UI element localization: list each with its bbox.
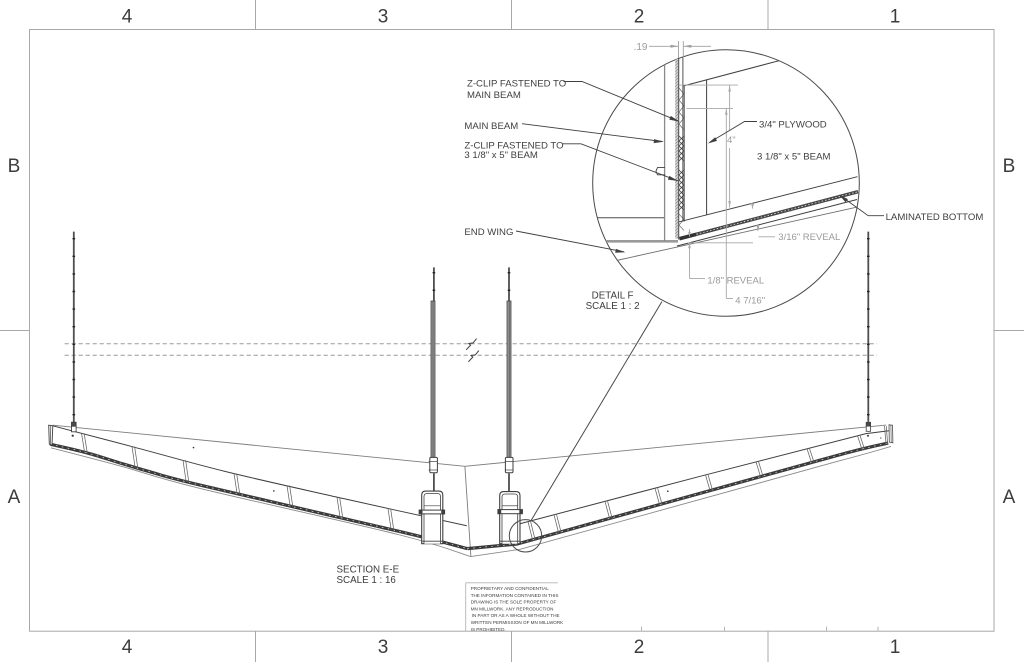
svg-text:3 1/8" x 5" BEAM: 3 1/8" x 5" BEAM <box>464 150 537 161</box>
svg-text:B: B <box>1003 156 1016 177</box>
svg-text:DRAWING IS THE SOLE PROPERTY O: DRAWING IS THE SOLE PROPERTY OF <box>471 600 557 605</box>
svg-text:IS PROHIBITED.: IS PROHIBITED. <box>471 627 506 632</box>
svg-text:B: B <box>8 156 21 177</box>
svg-text:SCALE 1 : 2: SCALE 1 : 2 <box>586 301 640 312</box>
svg-text:SECTION E-E: SECTION E-E <box>337 565 400 576</box>
svg-text:MAIN BEAM: MAIN BEAM <box>467 90 521 101</box>
svg-text:A: A <box>1003 487 1016 508</box>
svg-text:1: 1 <box>890 7 901 28</box>
svg-text:IN PART OR AS A WHOLE WITHOUT: IN PART OR AS A WHOLE WITHOUT THE <box>472 613 560 618</box>
svg-text:3: 3 <box>378 637 389 658</box>
svg-text:3: 3 <box>378 7 389 28</box>
svg-text:END WING: END WING <box>464 227 513 238</box>
svg-text:1/8" REVEAL: 1/8" REVEAL <box>707 276 764 287</box>
svg-text:4": 4" <box>727 135 736 146</box>
svg-text:THE INFORMATION CONTAINED IN T: THE INFORMATION CONTAINED IN THIS <box>471 593 559 598</box>
svg-text:2: 2 <box>634 7 645 28</box>
svg-text:3 1/8" x 5" BEAM: 3 1/8" x 5" BEAM <box>757 152 830 163</box>
svg-text:Z-CLIP FASTENED TO: Z-CLIP FASTENED TO <box>467 78 566 89</box>
svg-text:4 7/16": 4 7/16" <box>735 296 765 307</box>
svg-text:1: 1 <box>890 637 901 658</box>
svg-text:MN MILLWORK. ANY REPRODUCTION: MN MILLWORK. ANY REPRODUCTION <box>471 606 554 611</box>
svg-text:4: 4 <box>122 7 133 28</box>
svg-text:4: 4 <box>122 637 133 658</box>
svg-text:PROPRIETARY AND CONFIDENTIAL: PROPRIETARY AND CONFIDENTIAL <box>471 586 550 591</box>
svg-text:A: A <box>8 487 21 508</box>
svg-text:LAMINATED BOTTOM: LAMINATED BOTTOM <box>886 212 984 223</box>
svg-text:WRITTEN PERMISSION OF MN MILLW: WRITTEN PERMISSION OF MN MILLWORK <box>471 620 564 625</box>
svg-text:3/4" PLYWOOD: 3/4" PLYWOOD <box>759 120 827 131</box>
svg-text:3/16" REVEAL: 3/16" REVEAL <box>778 232 840 243</box>
svg-text:.19: .19 <box>634 42 648 53</box>
svg-text:2: 2 <box>634 637 645 658</box>
svg-text:MAIN BEAM: MAIN BEAM <box>464 121 518 132</box>
svg-text:SCALE 1 : 16: SCALE 1 : 16 <box>337 575 397 586</box>
